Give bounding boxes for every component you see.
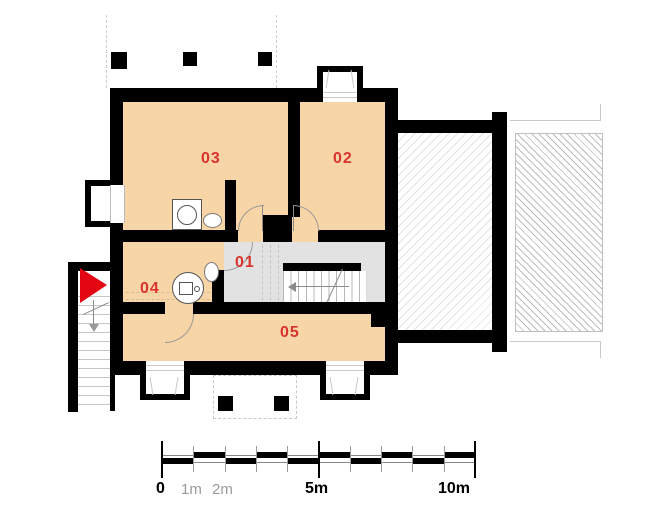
toilet-icon	[172, 272, 204, 304]
sink-icon	[203, 213, 222, 228]
chimney-icon	[258, 52, 272, 66]
scale-segment	[381, 452, 412, 458]
stair-walk-arrowhead	[288, 282, 296, 292]
scale-segment	[444, 452, 475, 458]
window-sill-line	[323, 97, 357, 98]
scale-segment	[193, 452, 225, 458]
scale-tick-minor	[444, 446, 445, 472]
scale-segment	[412, 458, 444, 464]
room-label-03: 03	[201, 150, 221, 168]
wall-balcony-bottom	[398, 330, 492, 343]
scale-segment	[162, 458, 193, 464]
wall-bath-nook	[225, 180, 236, 232]
scale-tick-minor	[350, 446, 351, 472]
ext-stair-arrowhead	[89, 324, 99, 332]
scale-segment	[256, 452, 287, 458]
roof-projection-dashed-line	[276, 15, 277, 88]
chimney-icon	[183, 52, 197, 66]
scale-segment	[225, 458, 256, 464]
wall-door-pillar	[263, 215, 292, 242]
room-label-02: 02	[333, 150, 353, 168]
wall-rooms-hall-right	[318, 230, 398, 242]
wall-room03-room02	[288, 101, 300, 217]
window-opening-bottom	[146, 361, 184, 375]
eave-line-tick	[600, 341, 601, 358]
stair-dashed-line	[262, 245, 263, 300]
toilet-bowl-dot	[194, 286, 200, 292]
sink-icon	[204, 262, 219, 282]
wall-room05-top-left	[123, 302, 165, 314]
washing-machine-icon	[172, 199, 202, 230]
dormer-window-icon	[320, 373, 370, 400]
scale-tick-major	[161, 441, 163, 478]
window-frame-left	[85, 180, 110, 227]
entrance-arrow-icon	[80, 268, 107, 303]
chimney-icon	[111, 52, 127, 69]
eave-line-tick	[600, 104, 601, 121]
chimney-icon	[274, 396, 289, 411]
door-leaf-room02	[293, 205, 294, 231]
room-label-05: 05	[280, 324, 300, 342]
eave-line	[510, 120, 601, 121]
wall-balcony-right	[492, 112, 507, 352]
scale-label-2m: 2m	[212, 481, 233, 498]
dormer-window-icon	[140, 373, 190, 400]
stair-dashed-line	[278, 245, 279, 300]
stair-dashed-line	[270, 245, 271, 300]
window-sill-line	[326, 365, 364, 366]
scale-segment	[287, 458, 319, 464]
scale-label-10m: 10m	[438, 480, 470, 498]
scale-label-0: 0	[156, 480, 165, 498]
wall-room05-top-right	[193, 302, 398, 314]
scale-tick-minor	[381, 446, 382, 472]
chimney-icon	[218, 396, 233, 411]
scale-label-1m: 1m	[181, 481, 202, 498]
balcony-hatch-area	[398, 133, 492, 330]
ext-stair-walk-line	[93, 300, 94, 325]
window-opening-top	[323, 88, 357, 102]
wall-ext-stairs-left	[68, 262, 78, 412]
door-leaf-room03	[262, 205, 263, 231]
scale-tick-minor	[287, 446, 288, 472]
window-opening-bottom	[326, 361, 364, 375]
window-sill-line	[326, 370, 364, 371]
wall-rooms-hall-left	[110, 230, 238, 242]
stair-handrail	[283, 263, 361, 271]
window-sill-line	[323, 92, 357, 93]
scale-tick-minor	[225, 446, 226, 472]
scale-segment	[319, 452, 350, 458]
roof-projection-dashed-line	[106, 15, 107, 88]
scale-segment	[350, 458, 381, 464]
window-sill-line	[146, 370, 184, 371]
scale-baseline	[162, 455, 475, 456]
scale-baseline	[162, 462, 475, 463]
wall-balcony-top	[398, 120, 492, 133]
roof-hatch-icon	[515, 133, 603, 332]
window-opening-left	[110, 185, 125, 223]
scale-label-5m: 5m	[305, 480, 328, 498]
room-label-01: 01	[235, 254, 255, 272]
eave-line	[510, 341, 601, 342]
scale-tick-major	[318, 441, 320, 478]
scale-tick-major	[474, 441, 476, 478]
stair-walk-line	[295, 286, 349, 287]
scale-tick-minor	[412, 446, 413, 472]
floor-plan-canvas: 03 02 01 04 05 0 1m 2m 5m 10m	[0, 0, 662, 520]
wall-stub-room05	[371, 313, 385, 327]
room-label-04: 04	[140, 280, 160, 298]
window-sill-line	[146, 365, 184, 366]
washing-machine-drum	[177, 205, 197, 225]
toilet-tank	[179, 282, 193, 295]
scale-tick-minor	[193, 446, 194, 472]
scale-tick-minor	[256, 446, 257, 472]
